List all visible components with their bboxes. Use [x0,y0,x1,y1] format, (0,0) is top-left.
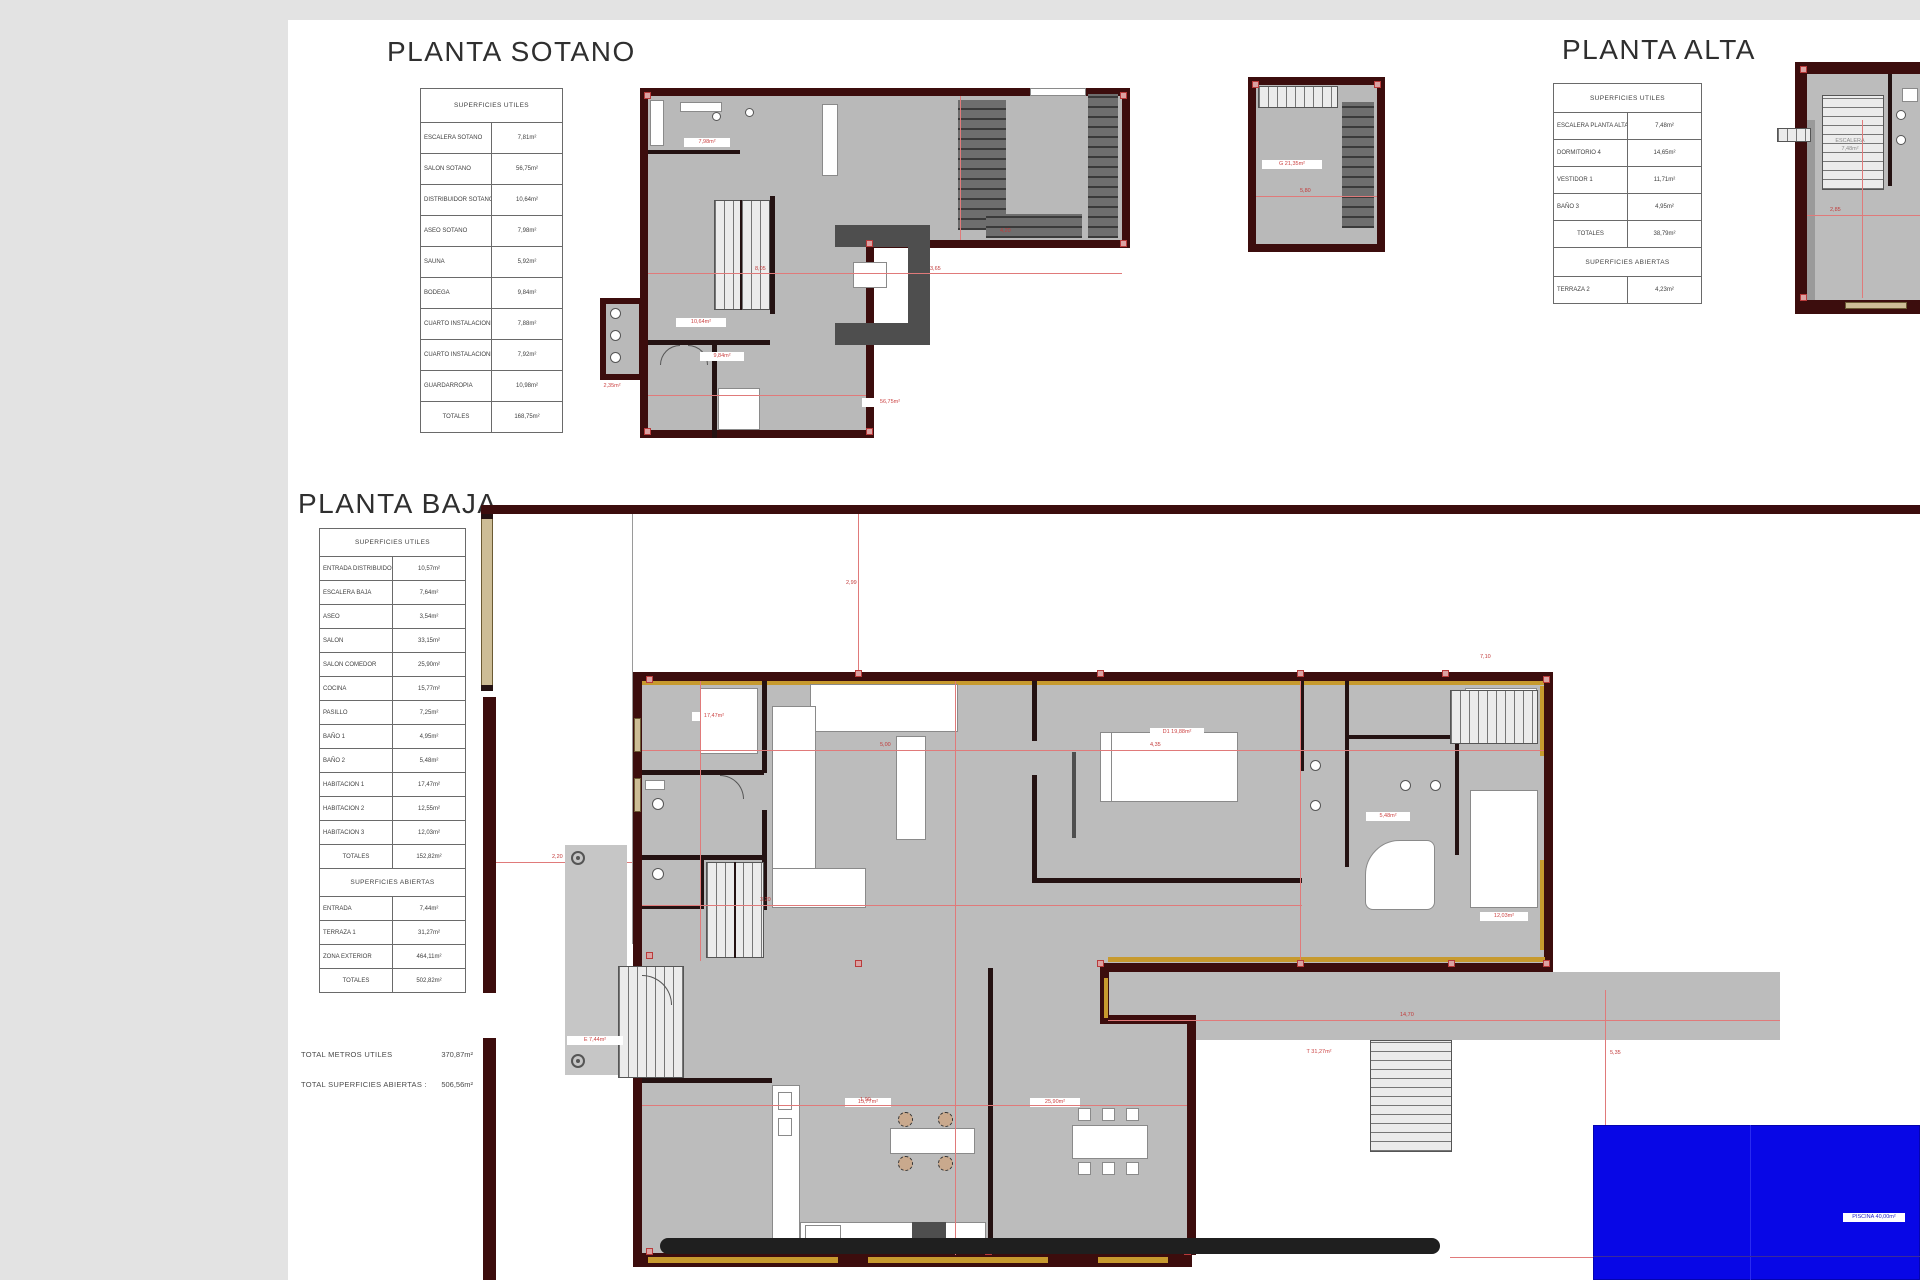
sotano-surface-table: SUPERFICIES UTILES ESCALERA SOTANO7,81m²… [420,88,563,433]
table-total-value: 38,79m² [1628,221,1702,248]
dimension-tick [1097,960,1104,967]
total-abiertas-value: 506,56m² [413,1080,473,1089]
chair [1126,1108,1139,1121]
table-cell: 10,98m² [492,371,563,402]
dimension-tick [1442,670,1449,677]
dimension-label: 4,35 [1150,742,1161,748]
bathtub [1365,840,1435,910]
dining-table [890,1128,975,1154]
wall-segment [770,196,775,314]
table-cell: 15,77m² [393,677,466,701]
chair [1078,1108,1091,1121]
table-cell: DISTRIBUIDOR SOTANO [421,185,492,216]
table-cell: COCINA [320,677,393,701]
tv-unit [1072,752,1076,838]
dimension-line [960,96,961,240]
table-header: SUPERFICIES UTILES [1554,84,1702,113]
table-total-label: TOTALES [1554,221,1628,248]
dimension-line [1605,990,1606,1125]
table-cell: 4,95m² [1628,194,1702,221]
drawing-canvas: PLANTA SOTANO SUPERFICIES UTILES ESCALER… [0,0,1920,1280]
table-cell: HABITACION 3 [320,821,393,845]
table-cell: 4,23m² [1628,277,1702,304]
alta-title: PLANTA ALTA [1562,34,1756,66]
boundary-wall [481,505,1920,514]
sink-counter [1902,88,1918,102]
stairs [1777,128,1811,142]
dimension-line [1807,215,1920,216]
wall-segment [1248,77,1256,252]
table-cell: 7,98m² [492,216,563,247]
room-label: D1 19,88m² [1150,728,1204,737]
table-cell: 4,95m² [393,725,466,749]
room-label: T 31,27m² [1292,1048,1346,1057]
wall-segment [1349,735,1459,739]
dimension-tick [1543,960,1550,967]
table-cell: ENTRADA [320,897,393,921]
table-cell: DORMITORIO 4 [1554,140,1628,167]
total-abiertas-label: TOTAL SUPERFICIES ABIERTAS : [301,1080,427,1089]
wall-segment [1345,681,1349,867]
total-utiles-label: TOTAL METROS UTILES [301,1050,392,1059]
wall-cap [481,514,493,519]
kitchen-island [896,736,926,840]
wall-segment [1795,62,1807,314]
table-cell: CUARTO INSTALACIONES 2 [421,340,492,371]
dimension-line [700,681,701,961]
table-cell: VESTIDOR 1 [1554,167,1628,194]
wall-segment [1455,735,1459,855]
dimension-tick [1097,670,1104,677]
sotano-title: PLANTA SOTANO [387,36,636,68]
room-label: G 21,35m² [1262,160,1322,169]
chair [898,1156,913,1171]
wall-lining [1540,686,1544,756]
sofa [772,868,866,908]
dimension-tick [646,676,653,683]
table-cell: HABITACION 1 [320,773,393,797]
bed [1470,790,1538,908]
table-cell: 56,75m² [492,154,563,185]
table-cell: ESCALERA SOTANO [421,123,492,154]
sofa [772,706,816,870]
table-total-label: TOTALES [320,969,393,993]
table-header: SUPERFICIES UTILES [421,89,563,123]
wall-lining [1098,1257,1168,1263]
table-cell: 10,64m² [492,185,563,216]
room-label: 7,98m² [684,138,730,147]
dimension-line [1256,196,1377,197]
table-total-value: 502,82m² [393,969,466,993]
table-cell: ASEO SOTANO [421,216,492,247]
room-label: 9,84m² [700,352,744,361]
table-cell: 7,81m² [492,123,563,154]
rug [810,684,958,732]
table-cell: 7,88m² [492,309,563,340]
baja-surface-table: SUPERFICIES UTILES ENTRADA DISTRIBUIDOR1… [319,528,466,993]
storage-unit [986,214,1082,238]
toilet [610,352,621,363]
sofa [835,323,930,345]
dimension-tick [855,670,862,677]
chair [898,1112,913,1127]
dimension-label: 3,20 [760,897,771,903]
room-label: 2,35m² [590,382,634,391]
dimension-tick [1252,81,1259,88]
dimension-tick [1800,294,1807,301]
terrace-floor [1108,972,1780,1040]
wall-segment [1248,244,1385,252]
pergola-shadow-bar [660,1238,1440,1254]
wall-lining [648,1257,838,1263]
bed-headboard [1100,732,1112,802]
shower [650,100,664,146]
wall-segment [642,770,764,775]
chair [1102,1162,1115,1175]
table-cell: ENTRADA DISTRIBUIDOR [320,557,393,581]
wall-segment [1248,77,1385,85]
table-cell: SALON SOTANO [421,154,492,185]
boundary-wall [483,1038,496,1280]
stairs [1450,690,1538,744]
table-total-label: TOTALES [320,845,393,869]
dimension-tick [866,428,873,435]
table-cell: 7,64m² [393,581,466,605]
table-cell: TERRAZA 2 [1554,277,1628,304]
alta-surface-table: SUPERFICIES UTILES ESCALERA PLANTA ALTA7… [1553,83,1702,304]
dining-table [1072,1125,1148,1159]
storage-unit [958,100,1006,230]
table-cell: 17,47m² [393,773,466,797]
storage-unit [1342,102,1374,228]
appliance [778,1118,792,1136]
toilet [745,108,754,117]
dimension-tick [866,240,873,247]
sink-counter [645,780,665,790]
wall-shadow [1807,120,1815,300]
table-cell: SALON [320,629,393,653]
table-cell: 14,65m² [1628,140,1702,167]
dimension-tick [1120,240,1127,247]
room-label: 10,64m² [676,318,726,327]
room-label: 56,75m² [862,398,918,407]
wall-segment [1845,302,1907,309]
chair [1126,1162,1139,1175]
sink-counter [680,102,722,112]
table-cell: BAÑO 3 [1554,194,1628,221]
table-cell: 31,27m² [393,921,466,945]
toilet [1400,780,1411,791]
table-cell: 5,92m² [492,247,563,278]
drain-spiral [571,1054,585,1068]
wall-segment [1795,62,1920,74]
terrace-steps [1370,1040,1452,1152]
pool-edge-line [1593,1256,1920,1257]
table-cell: 11,71m² [1628,167,1702,194]
total-utiles-value: 370,87m² [413,1050,473,1059]
dimension-tick [1374,81,1381,88]
table-cell: ESCALERA BAJA [320,581,393,605]
table-total-value: 168,75m² [492,402,563,433]
appliance [778,1092,792,1110]
chair [1102,1108,1115,1121]
bed [1100,732,1238,802]
room-label: E 7,44m² [567,1036,623,1045]
wall-segment [640,430,874,438]
toilet [610,330,621,341]
stairs [714,200,770,310]
dimension-line [642,750,1544,751]
dimension-tick [1800,66,1807,73]
table-cell: 3,54m² [393,605,466,629]
house-wall [633,672,642,955]
wall-segment [648,340,770,345]
table-cell: BAÑO 1 [320,725,393,749]
table-cell: TERRAZA 1 [320,921,393,945]
dimension-tick [1543,676,1550,683]
wall-segment [1032,775,1037,883]
window [634,718,641,752]
table-cell: 33,15m² [393,629,466,653]
table-cell: ASEO [320,605,393,629]
table-cell: BODEGA [421,278,492,309]
table-cell: 12,03m² [393,821,466,845]
table-cell: GUARDARROPIA [421,371,492,402]
house-wall [1187,1015,1196,1255]
dimension-line [648,395,866,396]
table-cell: ESCALERA PLANTA ALTA [1554,113,1628,140]
table-cell: 464,11m² [393,945,466,969]
wall-segment [762,681,767,773]
dimension-line [858,514,859,672]
wall-lining [1108,957,1545,962]
house-wall [1544,672,1553,972]
dimension-label: 5,35 [1610,1050,1621,1056]
wall-segment [1032,681,1037,741]
table-cell: SALON COMEDOR [320,653,393,677]
house-wall [633,1060,642,1265]
wall-segment [1888,74,1892,186]
wall-lining [642,681,1544,685]
room-label: 7,48m² [1826,146,1874,153]
dimension-label: 4,20 [1000,228,1011,234]
chair [1078,1162,1091,1175]
toilet [712,112,721,121]
dimension-tick [1448,960,1455,967]
dimension-line [642,905,1302,906]
table-cell: 9,84m² [492,278,563,309]
dimension-label: 2,20 [552,854,563,860]
toilet [652,798,664,810]
dimension-tick [1297,670,1304,677]
table-cell: PASILLO [320,701,393,725]
dimension-line [1108,1020,1780,1021]
toilet [610,308,621,319]
pool-label: PISCINA 40,00m² [1843,1213,1905,1222]
boundary-wall [481,514,493,690]
sink [1310,760,1321,771]
boundary-wall [483,697,496,993]
dimension-line [642,1105,1187,1106]
table-cell: SAUNA [421,247,492,278]
storage-unit [1088,94,1118,238]
wall-lining [1104,978,1108,1018]
chair [938,1156,953,1171]
dimension-tick [1120,92,1127,99]
table-header: SUPERFICIES ABIERTAS [320,869,466,897]
dimension-label: 5,00 [880,742,891,748]
dimension-tick [644,92,651,99]
dimension-line [1862,120,1863,298]
wall-lining [1540,860,1544,950]
room-label: 17,47m² [692,712,736,721]
room-label: 5,48m² [1366,812,1410,821]
dimension-line [1300,681,1301,963]
dimension-tick [646,952,653,959]
window [634,778,641,812]
baja-title: PLANTA BAJA [298,488,498,520]
stair-rail [740,200,742,310]
wall-cap [481,685,493,691]
table-cell: 7,44m² [393,897,466,921]
table-cell: 5,48m² [393,749,466,773]
room-label: ESCALERA [1826,138,1874,145]
dimension-tick [855,960,862,967]
dimension-tick [646,1248,653,1255]
dimension-label: 14,70 [1400,1012,1414,1018]
toilet [1896,135,1906,145]
cabinet [822,104,838,176]
bed [700,688,758,754]
table-cell: 7,48m² [1628,113,1702,140]
table-cell: 7,92m² [492,340,563,371]
table-cell: 10,57m² [393,557,466,581]
house-wall [1100,963,1553,972]
dimension-label: 2,85 [1830,207,1841,213]
wall-segment [1377,77,1385,252]
table-header: SUPERFICIES ABIERTAS [1554,248,1702,277]
wall-segment [988,968,993,1255]
table-cell: ZONA EXTERIOR [320,945,393,969]
wall-segment [1037,878,1302,883]
toilet [652,868,664,880]
dimension-line [955,681,956,1255]
dimension-label: 2,99 [846,580,857,586]
table-cell: 7,25m² [393,701,466,725]
dimension-label: 5,80 [1300,188,1311,194]
stair-rail [734,862,736,958]
bidet [1430,780,1441,791]
drain-spiral [571,851,585,865]
wall-segment [1122,88,1130,248]
table-cell: CUARTO INSTALACIONES 1 [421,309,492,340]
dimension-label: 7,10 [1480,654,1491,660]
dimension-tick [1297,960,1304,967]
toilet [1896,110,1906,120]
dimension-line [648,273,1122,274]
toilet [1310,800,1321,811]
table-cell: 12,55m² [393,797,466,821]
stairs [1258,86,1338,108]
wall-segment [642,1078,772,1083]
dimension-label: 1,90 [860,1097,871,1103]
room-label: 12,03m² [1480,912,1528,921]
house-wall [633,672,1553,681]
table-total-value: 152,82m² [393,845,466,869]
table-cell: HABITACION 2 [320,797,393,821]
wall-segment [648,150,740,154]
chair [938,1112,953,1127]
wall-lining [868,1257,1048,1263]
coffee-table [853,262,887,288]
table-header: SUPERFICIES UTILES [320,529,466,557]
table-total-label: TOTALES [421,402,492,433]
dimension-label: 8,05 [755,266,766,272]
table-cell: BAÑO 2 [320,749,393,773]
wall-segment [640,88,648,438]
table-cell: 25,90m² [393,653,466,677]
window [1030,88,1086,96]
dimension-label: 3,65 [930,266,941,272]
dimension-tick [644,428,651,435]
